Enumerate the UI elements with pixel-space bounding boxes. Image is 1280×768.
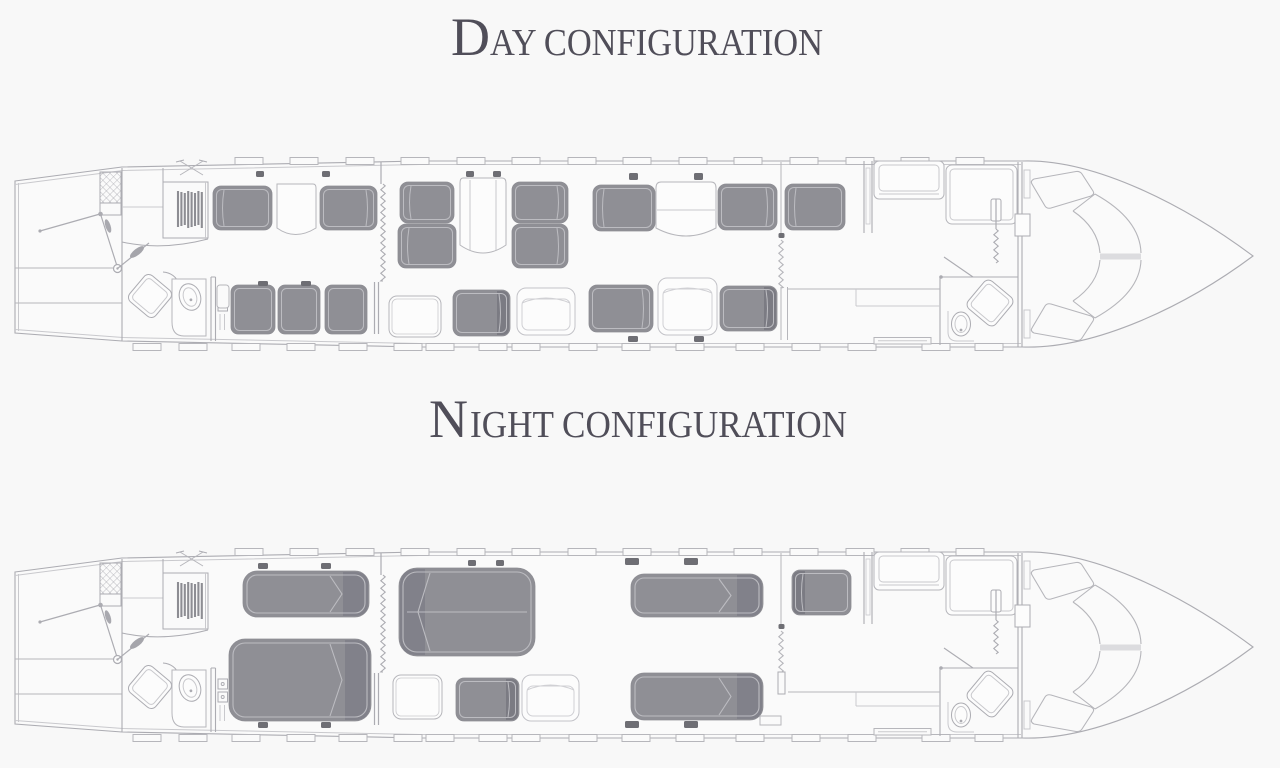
svg-text:IGHT CONFIGURATION: IGHT CONFIGURATION (470, 404, 847, 446)
svg-text:N: N (429, 389, 468, 449)
svg-text:D: D (451, 7, 490, 67)
svg-text:AY CONFIGURATION: AY CONFIGURATION (490, 22, 823, 64)
